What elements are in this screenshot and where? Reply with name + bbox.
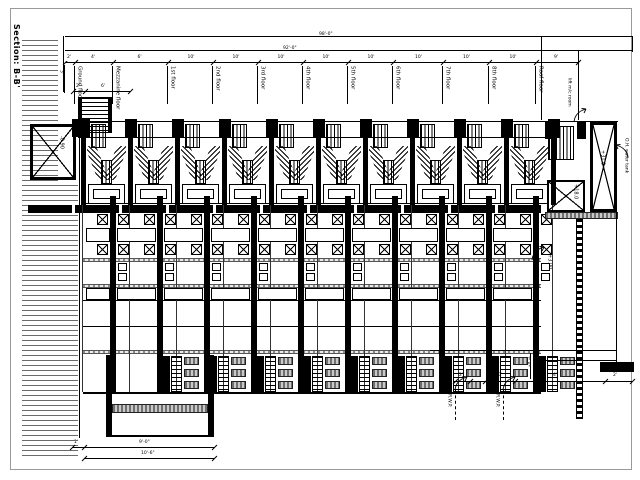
lower-stair-block bbox=[560, 369, 575, 377]
lower-stair-post bbox=[351, 356, 358, 392]
beam-xbox bbox=[306, 244, 317, 255]
beam-xbox bbox=[379, 244, 390, 255]
beam-xbox bbox=[400, 244, 411, 255]
segment-dim: 10' bbox=[462, 56, 471, 61]
stair-mid-treads bbox=[524, 160, 535, 184]
left-facade-line bbox=[79, 97, 80, 438]
wall-panel bbox=[86, 288, 110, 300]
beam-xbox bbox=[118, 244, 129, 255]
lower-stair-block bbox=[231, 357, 246, 365]
segment-dim: 6' bbox=[137, 56, 143, 61]
segment-dim: 10' bbox=[232, 56, 241, 61]
cupboard-rect bbox=[447, 263, 456, 271]
lower-stair-post bbox=[304, 356, 311, 392]
top-wall bbox=[128, 119, 133, 205]
tower-footing bbox=[600, 362, 634, 372]
lower-stair-post bbox=[492, 356, 499, 392]
beam-xbox bbox=[144, 214, 155, 225]
lower-stair-post bbox=[163, 356, 170, 392]
cupboard-rect bbox=[494, 273, 503, 281]
pipe-arrow-1 bbox=[453, 374, 471, 396]
door-panel bbox=[323, 184, 360, 204]
beam-xbox bbox=[447, 214, 458, 225]
lower-stair-ladder bbox=[547, 356, 558, 392]
segment-dim: 10' bbox=[277, 56, 286, 61]
lower-stair-block bbox=[372, 357, 387, 365]
stair-treads bbox=[91, 124, 106, 148]
top-wall bbox=[175, 119, 180, 205]
shaft-slab bbox=[112, 404, 208, 413]
cupboard-rect bbox=[541, 273, 550, 281]
wall-panel bbox=[211, 288, 250, 300]
lower-stair-block bbox=[372, 369, 387, 377]
dim-line-floors bbox=[65, 62, 578, 63]
beam-xbox bbox=[212, 244, 223, 255]
floor-label: 3rd floor bbox=[257, 66, 265, 104]
lower-stair-post bbox=[539, 356, 546, 392]
cupboard-rect bbox=[118, 263, 127, 271]
floor-label: 2nd floor bbox=[212, 66, 220, 104]
top-wall bbox=[410, 119, 415, 205]
cupboard-rect bbox=[306, 263, 315, 271]
top-wall bbox=[81, 119, 86, 205]
floor-label: 4th floor bbox=[302, 66, 310, 104]
wall-panel bbox=[305, 288, 344, 300]
beam-xbox bbox=[332, 214, 343, 225]
cupboard-rect bbox=[400, 263, 409, 271]
lower-stair-block bbox=[560, 357, 575, 365]
beam-xbox bbox=[165, 214, 176, 225]
beam-xbox bbox=[353, 244, 364, 255]
wall-panel bbox=[399, 288, 438, 300]
wall-panel bbox=[399, 228, 438, 242]
wall-panel bbox=[117, 228, 156, 242]
bl-dim-line-1 bbox=[72, 447, 214, 448]
beam-xbox bbox=[259, 244, 270, 255]
lower-stair-block bbox=[419, 357, 434, 365]
lower-stair-ladder bbox=[312, 356, 323, 392]
entry-dim-side: 3' bbox=[58, 70, 63, 74]
earth-hatch-lower bbox=[58, 185, 78, 458]
lower-stair-block bbox=[325, 357, 340, 365]
stair-treads bbox=[420, 124, 435, 148]
door-panel bbox=[135, 184, 172, 204]
stair-mid-treads bbox=[148, 160, 159, 184]
stair-treads bbox=[138, 124, 153, 148]
beam-xbox bbox=[494, 244, 505, 255]
floor-band bbox=[28, 205, 541, 213]
cupboard-rect bbox=[494, 263, 503, 271]
door-panel bbox=[370, 184, 407, 204]
wall-panel bbox=[446, 288, 485, 300]
segment-dim: 4' bbox=[90, 56, 96, 61]
segment-dim: 2' bbox=[66, 56, 72, 61]
tower-slab bbox=[545, 212, 618, 219]
beam-xbox bbox=[426, 214, 437, 225]
lower-stair-block bbox=[513, 357, 528, 365]
door-panel bbox=[182, 184, 219, 204]
beam-xbox bbox=[285, 244, 296, 255]
stair-mid-treads bbox=[477, 160, 488, 184]
door-panel bbox=[417, 184, 454, 204]
cupboard-rect bbox=[400, 273, 409, 281]
segment-dim: 10' bbox=[509, 56, 518, 61]
pipe-label-2: R.W.P. bbox=[494, 394, 499, 407]
beam-xbox bbox=[353, 214, 364, 225]
bl-dim-2: 9'-0" bbox=[138, 441, 151, 446]
br-dim-5: 2' bbox=[612, 374, 618, 379]
wall-panel bbox=[446, 228, 485, 242]
br-vert-dim bbox=[530, 353, 531, 379]
door-panel bbox=[464, 184, 501, 204]
stair-treads bbox=[326, 124, 341, 148]
beam-xbox bbox=[306, 214, 317, 225]
beam-xbox bbox=[332, 244, 343, 255]
stair-mid-treads bbox=[289, 160, 300, 184]
plinth-arrow bbox=[530, 244, 548, 266]
lower-stair-block bbox=[372, 381, 387, 389]
stair-mid-treads bbox=[430, 160, 441, 184]
wall-panel bbox=[352, 228, 391, 242]
floor-label: 5th floor bbox=[347, 66, 355, 104]
lower-stair-block bbox=[231, 369, 246, 377]
lower-stair-ladder bbox=[171, 356, 182, 392]
lift-machine-room-label: lift m/c room bbox=[566, 78, 571, 107]
beam-xbox bbox=[191, 214, 202, 225]
stair-treads bbox=[185, 124, 200, 148]
tower-dashed-wall bbox=[576, 219, 583, 419]
cupboard-rect bbox=[259, 273, 268, 281]
bl-dim-line-2 bbox=[84, 458, 214, 459]
beam-xbox bbox=[165, 244, 176, 255]
beam-xbox bbox=[379, 214, 390, 225]
beam-xbox bbox=[118, 214, 129, 225]
top-wall bbox=[316, 119, 321, 205]
top-wall bbox=[222, 119, 227, 205]
lower-stair-block bbox=[184, 369, 199, 377]
segment-dim: 10' bbox=[322, 56, 331, 61]
beam-xbox bbox=[238, 244, 249, 255]
tower-hline-1 bbox=[430, 350, 616, 351]
dim-line-overall bbox=[65, 36, 632, 37]
beam-xbox bbox=[238, 214, 249, 225]
floor-label: 8th floor bbox=[488, 66, 496, 104]
shaft-wall-right bbox=[208, 355, 214, 437]
entry-dim-2: 6' bbox=[100, 85, 106, 90]
door-panel bbox=[229, 184, 266, 204]
wall-panel bbox=[352, 288, 391, 300]
section-drawing-sheet: Section: B-B' 98'-0" 92'-0" -0.90 +31.0 … bbox=[0, 0, 640, 480]
segment-dim: 10' bbox=[367, 56, 376, 61]
slab-line-2 bbox=[83, 300, 541, 301]
stair-mid-treads bbox=[383, 160, 394, 184]
cupboard-rect bbox=[306, 273, 315, 281]
shaft-base bbox=[106, 435, 214, 437]
cupboard-rect bbox=[353, 273, 362, 281]
stair-treads bbox=[232, 124, 247, 148]
door-panel bbox=[276, 184, 313, 204]
stair-treads bbox=[467, 124, 482, 148]
bl-dim-total: 10'-6" bbox=[140, 452, 156, 457]
lower-stair-block bbox=[560, 381, 575, 389]
cupboard-rect bbox=[212, 273, 221, 281]
wall-panel bbox=[258, 288, 297, 300]
lower-stair-ladder bbox=[359, 356, 370, 392]
beam-xbox bbox=[191, 244, 202, 255]
beam-xbox bbox=[97, 244, 108, 255]
lower-stair-block bbox=[325, 369, 340, 377]
beam-xbox bbox=[520, 214, 531, 225]
top-wall bbox=[269, 119, 274, 205]
wall-panel bbox=[164, 228, 203, 242]
lower-stair-block bbox=[184, 381, 199, 389]
pipe-label-1: R.W.P. bbox=[446, 394, 451, 407]
beam-xbox bbox=[212, 214, 223, 225]
wall-panel bbox=[493, 288, 532, 300]
earth-hatch-upper bbox=[22, 40, 58, 458]
beam-xbox bbox=[494, 214, 505, 225]
top-wall bbox=[504, 119, 509, 205]
lower-stair-ladder bbox=[265, 356, 276, 392]
lower-stair-block bbox=[466, 357, 481, 365]
tower-stair-treads bbox=[548, 126, 574, 160]
cupboard-rect bbox=[259, 263, 268, 271]
floor-label: 1st floor bbox=[167, 66, 175, 104]
beam-xbox bbox=[97, 214, 108, 225]
beam-xbox bbox=[285, 214, 296, 225]
door-panel bbox=[511, 184, 548, 204]
cupboard-rect bbox=[118, 273, 127, 281]
wall-panel bbox=[305, 228, 344, 242]
floor-label: Roof floor bbox=[535, 66, 543, 104]
stair-mid-treads bbox=[336, 160, 347, 184]
floor-label: 7th floor bbox=[442, 66, 450, 104]
shaft-wall-left bbox=[106, 355, 112, 437]
slab-line-3 bbox=[83, 326, 541, 327]
stair-treads bbox=[373, 124, 388, 148]
entry-dim-line bbox=[73, 91, 130, 92]
beam-xbox bbox=[473, 214, 484, 225]
lower-stair-ladder bbox=[406, 356, 417, 392]
lower-stair-block bbox=[278, 369, 293, 377]
beam-xbox bbox=[144, 244, 155, 255]
stair-mid-treads bbox=[242, 160, 253, 184]
cupboard-rect bbox=[165, 273, 174, 281]
cupboard-rect bbox=[353, 263, 362, 271]
lower-stair-block bbox=[231, 381, 246, 389]
beam-xbox bbox=[473, 244, 484, 255]
tank-arrow bbox=[612, 142, 630, 164]
lift-room-arrow bbox=[572, 106, 590, 128]
lower-stair-block bbox=[278, 357, 293, 365]
floor-label: 6th floor bbox=[392, 66, 400, 104]
lower-stair-block bbox=[419, 381, 434, 389]
lower-stair-block bbox=[184, 357, 199, 365]
door-panel bbox=[88, 184, 125, 204]
lift-shaft-xbox bbox=[590, 122, 617, 212]
stair-mid-treads bbox=[195, 160, 206, 184]
beam-xbox bbox=[447, 244, 458, 255]
lower-stair-ladder bbox=[218, 356, 229, 392]
segment-dim: 10' bbox=[187, 56, 196, 61]
stair-treads bbox=[279, 124, 294, 148]
wall-panel bbox=[493, 228, 532, 242]
ext-line-right-end bbox=[632, 36, 633, 52]
cupboard-rect bbox=[212, 263, 221, 271]
tower-hline-2 bbox=[541, 360, 616, 361]
beam-xbox bbox=[426, 244, 437, 255]
dim-line-inner bbox=[65, 50, 632, 51]
wall-panel bbox=[117, 288, 156, 300]
wall-panel bbox=[258, 228, 297, 242]
lower-stair-block bbox=[325, 381, 340, 389]
lower-stair-block bbox=[419, 369, 434, 377]
top-wall bbox=[457, 119, 462, 205]
base-line bbox=[83, 392, 541, 394]
cupboard-rect bbox=[165, 263, 174, 271]
stair-treads bbox=[514, 124, 529, 148]
segment-dim: 9' bbox=[553, 56, 559, 61]
cupboard-rect bbox=[447, 273, 456, 281]
top-wall bbox=[363, 119, 368, 205]
stair-mid-treads bbox=[101, 160, 112, 184]
wall-panel bbox=[164, 288, 203, 300]
drawing-title: Section: B-B' bbox=[12, 24, 21, 88]
beam-xbox bbox=[259, 214, 270, 225]
left-shaft-xbox bbox=[30, 124, 76, 180]
lower-stair-post bbox=[257, 356, 264, 392]
wall-panel bbox=[86, 228, 110, 242]
lower-stair-block bbox=[278, 381, 293, 389]
partition-line bbox=[82, 205, 83, 392]
lower-stair-post bbox=[398, 356, 405, 392]
segment-dim: 10' bbox=[414, 56, 423, 61]
entry-side-dim bbox=[64, 65, 65, 93]
beam-xbox bbox=[400, 214, 411, 225]
tower-xbox bbox=[547, 180, 585, 212]
pipe-arrow-2 bbox=[501, 374, 519, 396]
lower-stair-post bbox=[445, 356, 452, 392]
floor-label: Mezzanine floor bbox=[112, 66, 120, 104]
wall-panel bbox=[211, 228, 250, 242]
dot-band-1 bbox=[83, 258, 541, 262]
